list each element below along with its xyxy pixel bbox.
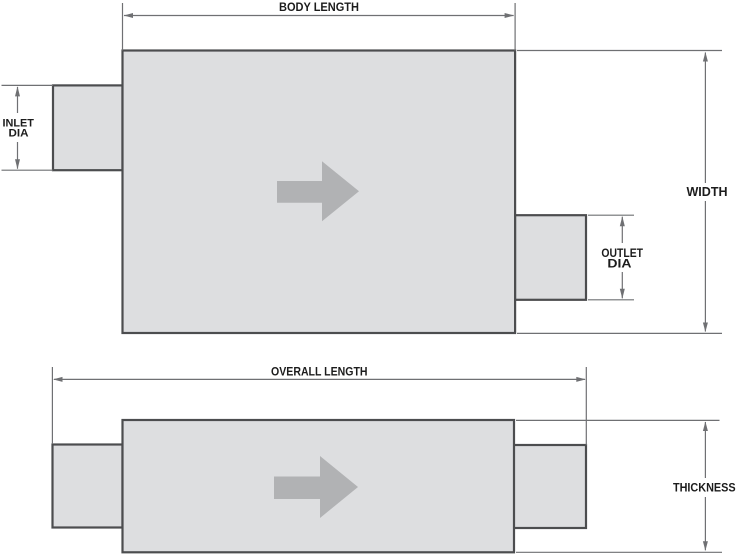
svg-text:OVERALL LENGTH: OVERALL LENGTH (271, 365, 368, 379)
svg-text:BODY LENGTH: BODY LENGTH (279, 0, 359, 14)
svg-text:THICKNESS: THICKNESS (673, 480, 736, 494)
svg-text:WIDTH: WIDTH (687, 185, 728, 199)
svg-text:DIA: DIA (607, 256, 631, 270)
svg-text:DIA: DIA (9, 128, 29, 140)
